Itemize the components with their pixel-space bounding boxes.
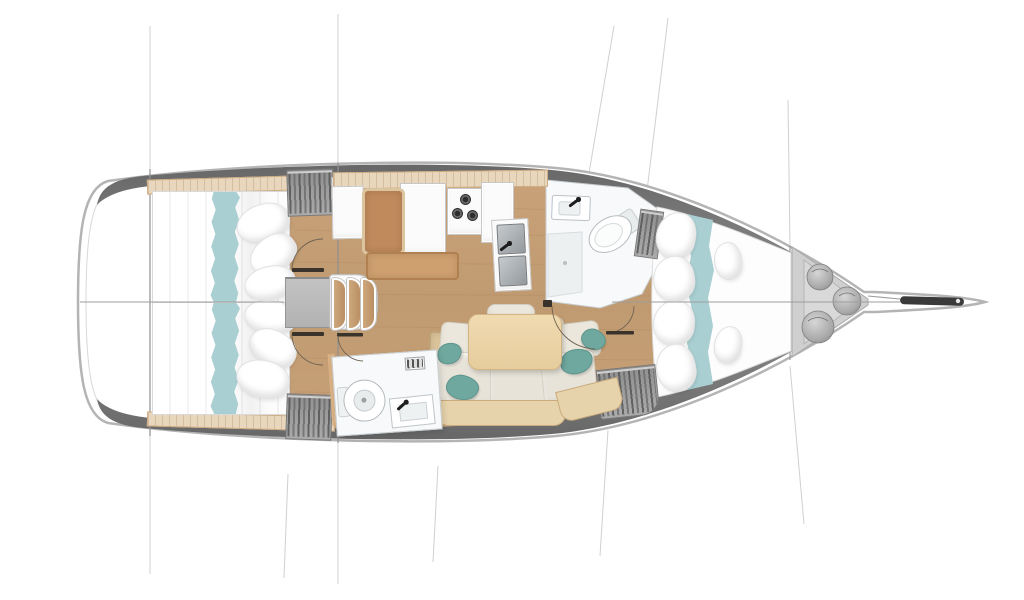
vent-badge-icon <box>405 356 426 370</box>
nav-seat <box>362 188 405 255</box>
sofa-base <box>436 400 566 426</box>
pillow <box>711 240 744 282</box>
pillow <box>651 298 698 348</box>
furniture-layer <box>0 0 1024 600</box>
step <box>361 278 376 330</box>
burner-icon <box>459 193 472 206</box>
sink-basin <box>498 255 528 286</box>
chart-table <box>400 183 446 254</box>
head-aft-room <box>331 349 442 436</box>
stove <box>447 188 484 235</box>
pillow <box>651 254 698 304</box>
wardrobe-aft-starboard <box>285 393 333 441</box>
locker-nav <box>332 186 365 240</box>
galley-sink-unit <box>491 218 532 292</box>
step <box>332 278 347 330</box>
pillow <box>711 324 744 366</box>
companionway-landing <box>285 277 332 328</box>
pillow <box>652 341 700 395</box>
bed-runner <box>210 192 240 303</box>
galley-bench <box>366 252 459 280</box>
companionway-steps <box>329 274 378 330</box>
step <box>347 278 362 330</box>
faucet-icon <box>566 196 582 208</box>
faucet-icon <box>393 398 410 411</box>
burner-icon <box>466 209 479 222</box>
yacht-floorplan <box>0 0 1024 600</box>
burner-icon <box>451 207 464 220</box>
wardrobe-aft-port <box>286 168 335 217</box>
salon-table <box>468 314 562 370</box>
faucet-icon <box>497 240 513 252</box>
bed-runner <box>210 303 240 414</box>
